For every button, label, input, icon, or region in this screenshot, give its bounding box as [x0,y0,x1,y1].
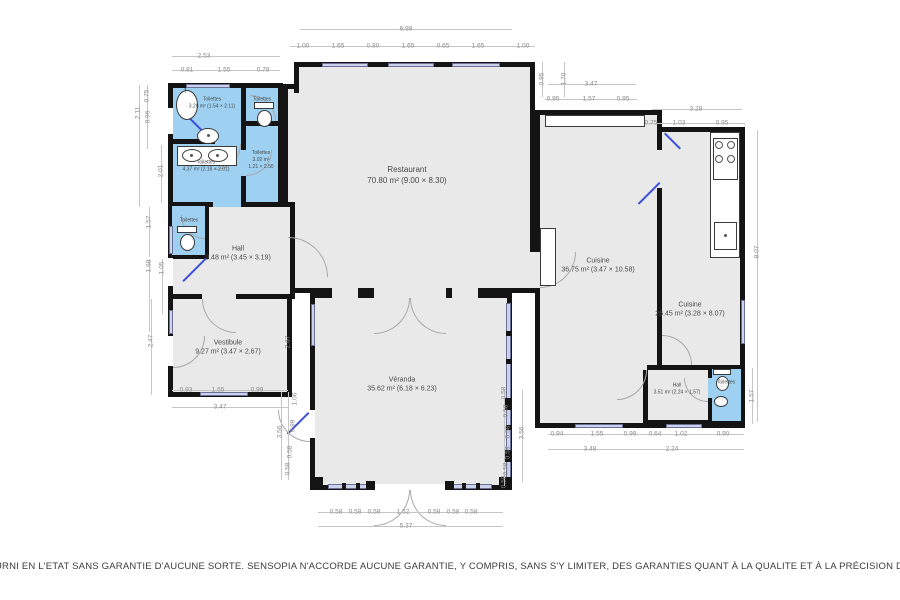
room-size: 70.80 m² (9.00 × 8.30) [367,176,446,187]
wall-post [476,483,480,490]
dimension-label: 0.75 [144,90,151,103]
dimension-label: 0.58 [465,509,478,516]
wall-post [506,331,512,336]
room-label-vestibule: Vestibule 9.27 m² (3.47 × 2.67) [195,339,261,358]
door-opening [310,410,315,438]
window [169,310,173,334]
kitchen-counter [540,228,556,286]
dimension-label: 0.58 [349,509,362,516]
window [448,484,492,489]
door-opening [530,252,540,288]
dimension-line [139,85,140,207]
room-name: Toilettes [189,96,235,103]
dimension-label: 0.58 [428,509,441,516]
room-size: 9.48 m² (3.45 × 3.19) [205,254,271,263]
dimension-label: 0.58 [503,405,510,418]
dimension-label: 5.37 [400,523,413,530]
dimension-label: 1.57 [749,390,756,403]
dimension-label: 0.94 [551,431,564,438]
room-size: 3.51 m² (2.24 × 1.57) [654,389,701,396]
room-label-toilette-small: Toilettes [180,218,198,225]
dimension-label: 0.96 [145,111,152,124]
dimension-label: 0.81 [181,67,194,74]
dimension-label: 0.75 [645,120,658,127]
dimension-label: 0.93 [180,387,193,394]
dimension-label: 0.58 [287,446,294,459]
dimension-label: 1.52 [397,509,410,516]
room-size: 3.26 m² (1.54 × 2.11) [189,103,235,110]
dimension-line [172,407,288,408]
room-name: Toilettes [183,159,230,166]
wall-post [310,477,323,490]
dimension-label: 2.47 [148,335,155,348]
room-name: Restaurant [367,165,446,176]
dimension-line [645,123,745,124]
room-name: Hall [205,245,271,254]
room-label-cuisine-right: Cuisine 26.45 m² (3.28 × 8.07) [655,301,724,320]
room-label-restaurant: Restaurant 70.80 m² (9.00 × 8.30) [367,165,446,187]
dimension-label: 0.65 [437,43,450,50]
wall-post [445,481,454,490]
dimension-label: 0.58 [501,476,508,489]
dimension-line [757,130,758,422]
room-name: Hall [654,382,701,389]
room-label-toilettes-tr: Toilettes [253,97,271,104]
dimension-label: 3.47 [585,81,598,88]
disclaimer-text: URNI EN L'ETAT SANS GARANTIE D'AUCUNE SO… [0,561,900,572]
sink-drain [190,154,193,157]
room-label-hall-small: Hall 3.51 m² (2.24 × 1.57) [654,382,701,396]
dimension-label: 0.99 [251,387,264,394]
room-label-toilettes-top: Toilettes 3.26 m² (1.54 × 2.11) [189,96,235,110]
room-label-hall: Hall 9.48 m² (3.45 × 3.19) [205,245,271,264]
dimension-label: 0.95 [539,73,546,86]
floor-plan-canvas: ↑ Restaurant 70.80 m² (9.00 × 8.30) Cuis… [0,0,900,600]
dimension-label: 0.80 [367,43,380,50]
dimension-label: 3.56 [277,426,284,439]
dimension-label: 3.48 [584,446,597,453]
room-label-veranda: Véranda 35.62 m² (6.18 × 6.23) [367,376,436,395]
room-size: 3.02 m² [248,157,273,164]
room-name: Véranda [367,376,436,385]
dimension-label: 6.98 [400,26,413,33]
dimension-label: 1.70 [561,73,568,86]
room-size: 36.75 m² (3.47 × 10.58) [561,266,634,275]
floor-plan-page: { "rooms": { "restaurant": {"name": "Res… [0,0,900,600]
room-name: Vestibule [195,339,261,348]
room-label-toilettes-mid: Toilettes 4.37 m² (2.18 × 2.01) [183,159,230,173]
dimension-label: 1.57 [583,96,596,103]
dimension-label: 0.78 [257,67,270,74]
dimension-label: 1.06 [292,393,299,406]
wall [241,88,246,202]
room-label-toilettes-right: Toilettes 3.02 m² 1.21 × 2.50 [248,150,273,170]
dimension-line [548,449,744,450]
dimension-label: 0.58 [505,447,512,460]
sink-drain [724,234,727,237]
dimension-label: 1.03 [673,120,686,127]
toilet-icon [180,234,195,251]
door-opening [213,202,241,207]
room-label-toilettes-br: Toilettes [717,380,735,387]
dimension-label: 8.07 [754,246,761,259]
dimension-label: 1.00 [297,43,310,50]
dimension-label: 3.47 [214,404,227,411]
window [388,63,434,67]
room-size: 4.37 m² (2.18 × 2.01) [183,166,230,173]
dimension-label: 1.05 [159,262,166,275]
stove-burner [727,141,735,149]
tap-arrow-icon: ↑ [183,86,188,95]
window [169,226,173,254]
wall-post [462,483,466,490]
window [452,63,500,67]
kitchen-counter [545,115,645,127]
dimension-label: 0.95 [617,96,630,103]
room-label-cuisine-main: Cuisine 36.75 m² (3.47 × 10.58) [561,257,634,276]
dimension-line [548,434,744,435]
dimension-label: 0.95 [716,120,729,127]
stove-burner [715,155,723,163]
toilet-icon [257,110,272,127]
window [186,84,230,88]
dimension-label: 2.24 [666,446,679,453]
wall-post [366,481,375,490]
sink-icon [714,396,728,407]
toilet-icon [713,369,731,375]
dimension-label: 0.99 [624,431,637,438]
window [322,63,368,67]
dimension-label: 1.02 [675,431,688,438]
room-name: Toilettes [253,97,271,104]
room-name: Cuisine [561,257,634,266]
dimension-label: 2.53 [198,53,211,60]
room-size: 1.21 × 2.50 [248,163,273,170]
wall [283,84,299,89]
dimension-label: 1.55 [218,67,231,74]
dimension-label: 2.67 [285,336,292,349]
dimension-label: 3.28 [690,106,703,113]
stove-burner [727,155,735,163]
sink-drain [216,154,219,157]
room-size: 26.45 m² (3.28 × 8.07) [655,310,724,319]
room-size: 9.27 m² (3.47 × 2.67) [195,348,261,357]
dimension-label: 3.56 [519,427,526,440]
dimension-label: 0.95 [547,96,560,103]
door-opening [374,288,446,298]
dimension-label: 0.58 [368,509,381,516]
dimension-label: 1.65 [332,43,345,50]
dimension-label: 0.58 [330,509,343,516]
toilet-icon [177,226,197,233]
dimension-label: 0.58 [501,387,508,400]
dimension-label: 1.00 [517,43,530,50]
dimension-label: 2.01 [158,165,165,178]
window [311,304,315,346]
dimension-label: 0.90 [717,431,730,438]
wall-post [506,359,512,364]
door-opening [168,258,173,286]
dimension-label: 0.64 [649,431,662,438]
door-opening [708,378,712,398]
window [666,424,702,428]
dimension-label: 1.55 [591,431,604,438]
dimension-label: 0.58 [505,426,512,439]
dimension-label: 0.58 [447,509,460,516]
dimension-label: 1.55 [212,387,225,394]
door-opening [452,288,478,298]
room-size: 35.62 m² (6.18 × 6.23) [367,385,436,394]
dimension-label: 1.65 [472,43,485,50]
room-name: Toilettes [248,150,273,157]
window [741,300,745,344]
door-opening [332,288,358,298]
stove-burner [715,141,723,149]
dimension-label: 2.11 [135,107,142,119]
door-opening [168,108,173,134]
dimension-label: 0.99 [290,420,297,433]
dimension-label: 1.68 [146,260,153,273]
wall-post [356,483,360,490]
window [575,424,623,428]
dimension-label: 0.58 [285,463,292,476]
room-name: Cuisine [655,301,724,310]
dimension-line [172,56,280,57]
dimension-label: 1.65 [402,43,415,50]
room-name: Toilettes [717,380,735,387]
wall-post [342,483,346,490]
dimension-label: 1.57 [146,216,153,229]
dimension-label: 0.58 [503,463,510,476]
room-name: Toilettes [180,218,198,225]
sink-drain [207,134,210,137]
